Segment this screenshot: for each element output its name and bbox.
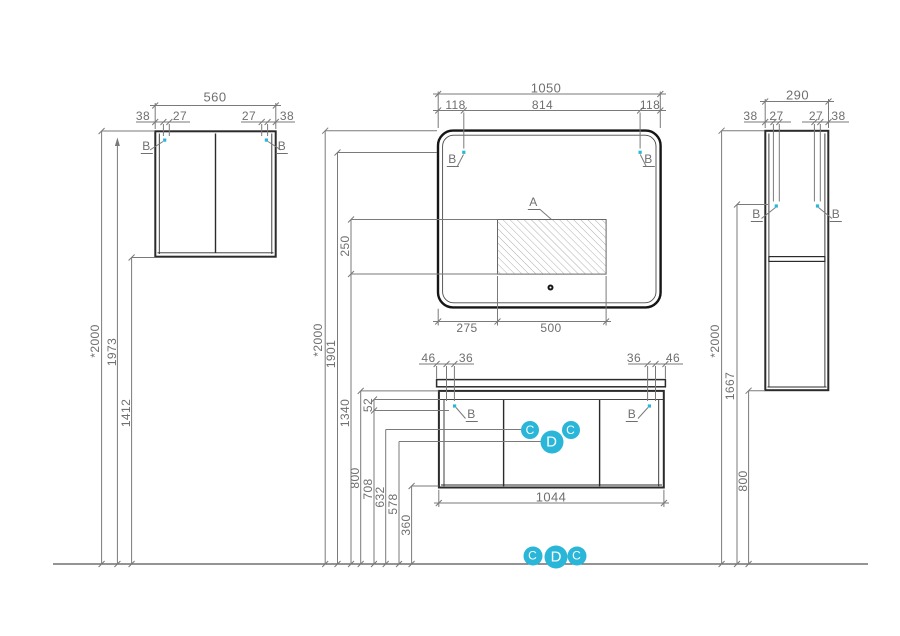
- dim-offset: 27: [769, 110, 783, 122]
- hinge-label-b: B: [750, 208, 762, 222]
- dim-offset: 46: [666, 352, 680, 364]
- vanity-hinge-markers: [453, 404, 651, 407]
- drawing-linework: [0, 0, 900, 636]
- dim-offset: 38: [280, 110, 294, 122]
- tall-cabinet-shelf: [769, 257, 825, 262]
- dim-height: 250: [339, 235, 351, 256]
- arrowhead: [115, 138, 120, 147]
- dim-offset: 118: [445, 99, 465, 111]
- dim-offset: 38: [831, 110, 845, 122]
- technical-drawing-bathroom-furniture: 560 38 27 27 38 B B 1050 118 814 118 275…: [0, 0, 900, 636]
- callout-c: C: [567, 546, 586, 565]
- dim-height: 632: [374, 486, 386, 507]
- dim-offset: 27: [173, 110, 187, 122]
- hinge-label-b: B: [276, 140, 288, 154]
- callout-c: C: [523, 546, 542, 565]
- dim-offset: 46: [421, 352, 435, 364]
- dim-height: 360: [400, 514, 412, 535]
- dim-height: 1973: [106, 338, 118, 366]
- dim-height: 800: [349, 467, 361, 488]
- marker-leader-lines: [386, 430, 541, 442]
- hinge-label-b: B: [446, 153, 458, 167]
- dim-height: *2000: [89, 324, 101, 357]
- dim-offset: 118: [640, 99, 660, 111]
- dim-offset: 36: [459, 352, 473, 364]
- hinge-label-b: B: [626, 408, 638, 422]
- callout-c: C: [562, 421, 580, 439]
- hinge-label-b: B: [830, 208, 842, 222]
- dim-height: 800: [737, 470, 749, 491]
- wall-cabinet-outline: [155, 131, 275, 256]
- hinge-label-b: B: [140, 140, 152, 154]
- dim-offset: 36: [627, 352, 641, 364]
- dim-height: *2000: [709, 324, 721, 357]
- dim-height: 1901: [325, 340, 337, 368]
- extension-lines: [351, 92, 660, 326]
- dim-lines: [136, 106, 295, 123]
- leader-lines: [458, 155, 647, 220]
- dim-offset: 500: [540, 322, 561, 334]
- vanity-countertop: [437, 380, 666, 387]
- mirror-light-zone: [498, 220, 607, 275]
- tall-cabinet-hinge-markers: [775, 204, 819, 207]
- dim-offset: 38: [136, 110, 150, 122]
- dim-offset: 38: [743, 110, 757, 122]
- dim-width-tall-cabinet: 290: [786, 89, 809, 102]
- dim-width-mirror: 1050: [531, 82, 562, 95]
- callout-c: C: [521, 421, 539, 439]
- hinge-leader-lines: [762, 208, 833, 219]
- tall-cabinet-outline: [765, 131, 828, 390]
- mirror-hinge-markers: [462, 151, 642, 154]
- dim-offset: 275: [456, 322, 477, 334]
- section-label-a: A: [527, 196, 539, 210]
- callout-d: D: [545, 546, 568, 569]
- dim-height: 1340: [339, 399, 351, 427]
- callout-d: D: [540, 431, 563, 454]
- mirror-dimensions: [351, 91, 666, 326]
- hinge-label-b: B: [642, 153, 654, 167]
- height-dimensions-right: [719, 128, 768, 567]
- dim-offset: 814: [532, 99, 553, 111]
- dim-height: *2000: [312, 323, 324, 356]
- hinge-label-b: B: [465, 408, 477, 422]
- dim-height: 1667: [724, 372, 736, 400]
- dim-hinge-drop: 52: [362, 398, 374, 412]
- dim-offset: 27: [242, 110, 256, 122]
- dim-ticks: [719, 128, 752, 567]
- dim-height: 1412: [120, 399, 132, 427]
- dim-width-vanity: 1044: [536, 490, 567, 503]
- dim-height: 578: [387, 493, 399, 514]
- dim-width-wall-cabinet: 560: [204, 91, 227, 104]
- hinge-leader-lines: [456, 408, 648, 419]
- dim-offset: 27: [809, 110, 823, 122]
